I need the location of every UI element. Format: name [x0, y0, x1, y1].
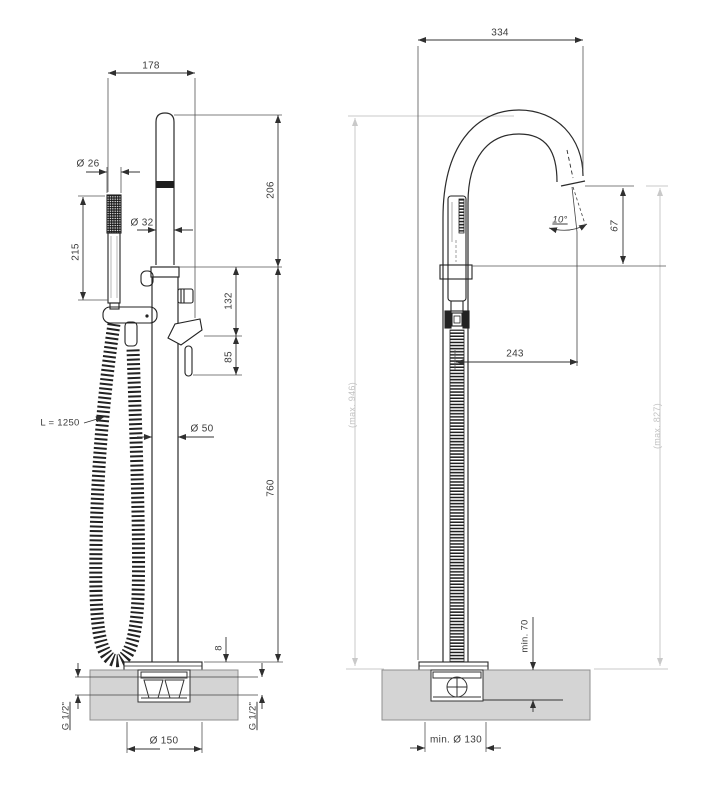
- dim-front-inlet-right: G 1/2": [248, 702, 259, 730]
- dim-front-column-height: 760: [266, 479, 277, 497]
- side-floor-slab: [382, 670, 590, 720]
- dim-front-column-diameter: Ø 50: [191, 424, 214, 435]
- front-column: [151, 113, 179, 662]
- front-shower-hose: [96, 324, 139, 661]
- dim-side-min-base-diameter: min. Ø 130: [430, 735, 482, 746]
- dim-side-reach-total: 334: [491, 28, 509, 39]
- front-view-drawing: [75, 73, 283, 753]
- front-diverter-knob: [178, 289, 193, 303]
- dim-side-max-spout-height: (max. 827): [652, 403, 662, 449]
- technical-drawing-canvas: 178 Ø 26 215 Ø 32 206 132 85 L = 1250 Ø …: [0, 0, 706, 800]
- dim-front-handset-length: 215: [71, 243, 82, 261]
- side-gray-guides: [346, 116, 668, 669]
- dim-side-spout-angle: 10°: [552, 215, 567, 226]
- side-dimension-lines: [410, 40, 666, 752]
- dim-front-spout-height: 206: [266, 181, 277, 199]
- side-view-drawing: [346, 40, 668, 752]
- dim-front-inlet-left: G 1/2": [61, 702, 72, 730]
- dim-side-spout-drop: 67: [610, 220, 621, 232]
- dim-side-min-recess-depth: min. 70: [520, 619, 531, 652]
- dim-front-spout-offset: 178: [142, 61, 160, 72]
- dim-side-spout-reach: 243: [506, 349, 524, 360]
- front-mixer-lever: [168, 319, 202, 376]
- dim-front-base-diameter: Ø 150: [150, 736, 179, 747]
- front-base: [75, 662, 258, 720]
- side-hand-shower: [440, 196, 472, 328]
- side-base: [382, 662, 590, 720]
- side-shower-hose-coil: [450, 330, 464, 662]
- dim-front-riser-diameter: Ø 32: [131, 218, 154, 229]
- dim-front-hose-length: L = 1250: [40, 418, 79, 429]
- dim-side-max-height: (max. 946): [347, 382, 357, 428]
- dim-front-diverter-height: 132: [224, 292, 235, 310]
- dim-front-base-plate-thickness: 8: [214, 645, 225, 651]
- dim-front-handset-diameter: Ø 26: [77, 159, 100, 170]
- dim-front-lever-height: 85: [224, 351, 235, 363]
- front-spout-outlet-band: [156, 181, 174, 188]
